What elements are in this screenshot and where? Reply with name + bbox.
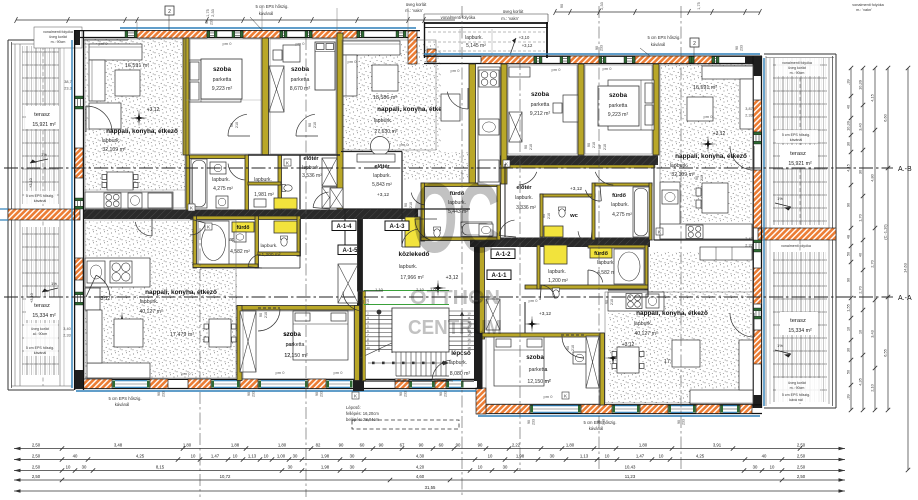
svg-text:5 cm EPS hőszig.: 5 cm EPS hőszig. <box>26 194 54 198</box>
svg-text:nappali, konyha, étkező: nappali, konyha, étkező <box>145 289 217 296</box>
svg-text:pm 0: pm 0 <box>223 41 233 46</box>
svg-text:szoba: szoba <box>531 91 550 98</box>
svg-text:üveg korlát: üveg korlát <box>406 2 427 7</box>
svg-text:m.: 90cm: m.: 90cm <box>790 71 805 75</box>
svg-text:kávánál: kávánál <box>589 426 604 431</box>
svg-text:2,50: 2,50 <box>797 465 806 470</box>
svg-text:nappali, konyha, étkező: nappali, konyha, étkező <box>675 153 747 160</box>
svg-text:fürdő: fürdő <box>237 225 250 231</box>
svg-text:90: 90 <box>315 392 319 396</box>
svg-text:lapburk.: lapburk. <box>254 177 272 183</box>
svg-text:m.: 90cm: m.: 90cm <box>51 40 66 44</box>
svg-text:10: 10 <box>366 346 370 350</box>
svg-text:5,843 m²: 5,843 m² <box>372 182 392 188</box>
svg-text:2,33: 2,33 <box>211 9 215 16</box>
svg-text:pm 0: pm 0 <box>276 370 286 375</box>
svg-text:9,223 m²: 9,223 m² <box>212 86 233 92</box>
svg-text:90: 90 <box>399 392 403 396</box>
svg-text:17,966 m²: 17,966 m² <box>400 275 424 281</box>
svg-text:parketta: parketta <box>286 342 305 348</box>
svg-text:90: 90 <box>695 176 699 180</box>
svg-text:al.: 90cm: al.: 90cm <box>33 332 48 336</box>
svg-text:1,200 m²: 1,200 m² <box>548 278 568 284</box>
svg-text:2,50: 2,50 <box>32 465 41 470</box>
svg-text:lapburk.: lapburk. <box>373 173 391 179</box>
svg-text:18,586 m²: 18,586 m² <box>373 95 397 101</box>
svg-text:90: 90 <box>259 313 263 317</box>
svg-text:lapburk.: lapburk. <box>102 138 120 144</box>
svg-text:K: K <box>354 394 357 399</box>
svg-text:16,591 m²: 16,591 m² <box>125 63 149 69</box>
svg-text:5 cm EPS hőszig.: 5 cm EPS hőszig. <box>108 396 141 401</box>
svg-text:3,87: 3,87 <box>745 107 752 111</box>
svg-text:40,127 m²: 40,127 m² <box>139 309 163 315</box>
svg-text:15,921 m²: 15,921 m² <box>32 122 56 128</box>
svg-text:1,98: 1,98 <box>321 465 330 470</box>
svg-text:2: 2 <box>693 41 696 47</box>
svg-text:4,80: 4,80 <box>870 173 875 181</box>
svg-text:1,80: 1,80 <box>566 443 575 448</box>
svg-text:2,50: 2,50 <box>32 454 41 459</box>
svg-text:szoba: szoba <box>283 331 301 338</box>
svg-text:14,63: 14,63 <box>903 263 908 273</box>
svg-text:4,582 m²: 4,582 m² <box>230 249 250 255</box>
svg-text:OTTHON: OTTHON <box>410 287 500 309</box>
svg-text:90: 90 <box>478 443 483 448</box>
svg-text:terasz: terasz <box>790 151 806 157</box>
svg-text:parketta: parketta <box>213 77 232 83</box>
svg-text:90: 90 <box>598 145 602 149</box>
svg-text:10,39: 10,39 <box>858 80 863 90</box>
svg-text:CENTRUM: CENTRUM <box>408 317 502 339</box>
svg-text:1,200 m²: 1,200 m² <box>262 252 281 258</box>
svg-text:30: 30 <box>550 454 555 459</box>
svg-text:30: 30 <box>293 454 298 459</box>
svg-text:4,30: 4,30 <box>416 454 425 459</box>
svg-text:233: 233 <box>320 391 324 397</box>
svg-text:10: 10 <box>478 465 483 470</box>
svg-text:5 cm EPS hőszig.: 5 cm EPS hőszig. <box>647 35 680 40</box>
svg-text:210: 210 <box>610 299 614 305</box>
svg-text:kávánál: kávánál <box>115 402 130 407</box>
svg-text:vonalmenti folyóka: vonalmenti folyóka <box>43 30 73 34</box>
svg-text:48: 48 <box>846 235 851 239</box>
svg-text:210: 210 <box>264 312 268 318</box>
svg-text:10: 10 <box>605 454 610 459</box>
svg-text:90: 90 <box>560 4 564 8</box>
svg-text:K: K <box>207 225 210 230</box>
svg-text:2,50: 2,50 <box>797 474 806 479</box>
svg-text:3,43: 3,43 <box>870 330 875 338</box>
svg-text:lapburk.: lapburk. <box>597 260 615 266</box>
svg-text:90: 90 <box>542 214 546 218</box>
svg-text:pm 0: pm 0 <box>529 298 539 303</box>
svg-text:parketta: parketta <box>529 367 548 373</box>
svg-text:m.: 'vakn': m.: 'vakn' <box>856 8 872 12</box>
svg-text:fellépés: 16,20cm: fellépés: 16,20cm <box>346 411 379 416</box>
svg-text:terasz: terasz <box>34 303 50 309</box>
svg-text:K: K <box>564 394 567 399</box>
svg-text:A-1-5: A-1-5 <box>342 248 358 254</box>
svg-text:+3,12: +3,12 <box>713 131 726 137</box>
svg-text:90: 90 <box>419 443 424 448</box>
svg-text:5 cm EPS hőszig.: 5 cm EPS hőszig. <box>782 393 810 397</box>
svg-text:90: 90 <box>157 392 161 396</box>
svg-text:szoba: szoba <box>291 66 310 73</box>
svg-text:210: 210 <box>366 299 370 305</box>
svg-text:pm 0: pm 0 <box>99 41 109 46</box>
svg-text:+3,12: +3,12 <box>147 107 160 113</box>
svg-text:233: 233 <box>600 45 604 51</box>
svg-text:12,150 m²: 12,150 m² <box>527 379 551 385</box>
svg-text:parketta: parketta <box>291 77 310 83</box>
svg-text:17,479 m²: 17,479 m² <box>170 332 194 338</box>
svg-text:90: 90 <box>587 143 591 147</box>
svg-text:m.: 'vakn': m.: 'vakn' <box>501 16 519 21</box>
svg-text:1%: 1% <box>41 152 47 157</box>
svg-text:pm 0: pm 0 <box>451 68 461 73</box>
svg-text:10,43: 10,43 <box>625 465 636 470</box>
svg-text:5,145 m²: 5,145 m² <box>466 43 486 49</box>
svg-text:1,80: 1,80 <box>639 443 648 448</box>
svg-text:4,20: 4,20 <box>416 465 425 470</box>
svg-text:1,00: 1,00 <box>277 454 286 459</box>
svg-text:4,25: 4,25 <box>696 454 705 459</box>
svg-text:K: K <box>286 161 289 166</box>
svg-text:233: 233 <box>444 391 448 397</box>
svg-text:30: 30 <box>288 465 293 470</box>
svg-text:90: 90 <box>527 420 531 424</box>
svg-text:67: 67 <box>400 443 405 448</box>
svg-text:2,50: 2,50 <box>32 474 41 479</box>
svg-text:lapburk.: lapburk. <box>634 321 652 327</box>
svg-text:90: 90 <box>361 300 365 304</box>
svg-text:3,48: 3,48 <box>114 443 123 448</box>
svg-text:210: 210 <box>592 142 596 148</box>
svg-text:A-1-3: A-1-3 <box>389 224 405 230</box>
svg-text:kávánál: kávánál <box>790 138 803 142</box>
svg-text:2,70: 2,70 <box>858 285 863 293</box>
svg-text:4,15: 4,15 <box>870 94 875 102</box>
svg-text:1%: 1% <box>777 196 783 201</box>
svg-text:1%: 1% <box>51 281 57 286</box>
svg-text:1,98: 1,98 <box>516 454 525 459</box>
svg-text:2,33: 2,33 <box>745 244 752 248</box>
svg-text:10: 10 <box>66 465 71 470</box>
svg-text:pm 0: pm 0 <box>544 394 554 399</box>
svg-text:8,080 m²: 8,080 m² <box>450 371 471 377</box>
svg-text:27,530 m²: 27,530 m² <box>374 129 398 135</box>
svg-text:A.-B: A.-B <box>898 166 912 173</box>
svg-text:233: 233 <box>404 391 408 397</box>
svg-text:90: 90 <box>439 392 443 396</box>
svg-text:1,47: 1,47 <box>211 454 220 459</box>
svg-text:2,33: 2,33 <box>745 114 752 118</box>
svg-text:233: 233 <box>682 419 686 425</box>
svg-text:+3,12: +3,12 <box>570 186 582 192</box>
svg-text:30: 30 <box>753 465 758 470</box>
svg-text:4,35: 4,35 <box>858 378 863 386</box>
svg-text:üveg korlát: üveg korlát <box>788 381 806 385</box>
svg-text:210: 210 <box>529 144 533 150</box>
svg-text:233: 233 <box>162 391 166 397</box>
svg-text:lapburk.: lapburk. <box>374 118 392 124</box>
svg-text:kávánál: kávánál <box>34 199 47 203</box>
svg-text:terasz: terasz <box>34 112 50 118</box>
svg-text:5 cm EPS hőszig.: 5 cm EPS hőszig. <box>26 346 54 350</box>
svg-text:2,22: 2,22 <box>512 443 521 448</box>
svg-text:90: 90 <box>735 46 739 50</box>
svg-text:1,47: 1,47 <box>636 454 645 459</box>
svg-text:1,98: 1,98 <box>321 454 330 459</box>
svg-text:233: 233 <box>740 45 744 51</box>
svg-text:2,10: 2,10 <box>870 383 875 391</box>
svg-text:kávánál: kávánál <box>259 11 274 16</box>
svg-text:82: 82 <box>316 443 321 448</box>
svg-text:4,275 m²: 4,275 m² <box>612 212 632 218</box>
svg-text:210: 210 <box>700 175 704 181</box>
svg-text:,39: ,39 <box>846 394 851 399</box>
svg-text:2,50: 2,50 <box>797 454 806 459</box>
svg-text:32,109 m²: 32,109 m² <box>102 147 126 153</box>
svg-text:1,981 m²: 1,981 m² <box>254 192 274 198</box>
svg-text:10: 10 <box>191 454 196 459</box>
svg-text:pm 0: pm 0 <box>552 67 562 72</box>
svg-text:lapburk.: lapburk. <box>449 360 467 366</box>
svg-text:vonalmenti folyóka: vonalmenti folyóka <box>852 3 884 7</box>
svg-text:parketta: parketta <box>609 103 628 109</box>
svg-text:vonalmenti folyóka: vonalmenti folyóka <box>441 15 476 20</box>
svg-text:210: 210 <box>603 144 607 150</box>
svg-text:10: 10 <box>659 454 664 459</box>
svg-text:3,536 m²: 3,536 m² <box>302 173 322 179</box>
svg-text:lapburk.: lapburk. <box>465 35 483 41</box>
svg-text:16,591 m²: 16,591 m² <box>693 85 717 91</box>
svg-text:90: 90 <box>456 443 461 448</box>
svg-text:15,921 m²: 15,921 m² <box>788 161 812 167</box>
svg-text:kává nál: kává nál <box>789 398 803 402</box>
svg-text:10: 10 <box>264 454 269 459</box>
svg-text:,39: ,39 <box>846 79 851 84</box>
svg-text:lapburk.: lapburk. <box>548 269 566 275</box>
svg-text:előtér: előtér <box>374 164 390 170</box>
svg-text:wc: wc <box>569 213 579 219</box>
svg-text:2,50: 2,50 <box>32 443 41 448</box>
svg-text:lapburk.: lapburk. <box>260 243 277 249</box>
svg-text:5 cm EPS hőszig.: 5 cm EPS hőszig. <box>782 133 810 137</box>
svg-text:1,88: 1,88 <box>231 443 240 448</box>
svg-text:lépcső: lépcső <box>451 350 471 357</box>
svg-text:+3,12: +3,12 <box>446 275 459 281</box>
svg-text:3,40: 3,40 <box>858 122 863 130</box>
svg-text:6,55: 6,55 <box>883 349 888 357</box>
svg-text:40: 40 <box>762 454 767 459</box>
svg-text:vonalmenti folyóka: vonalmenti folyóka <box>781 244 811 248</box>
svg-text:+3,12: +3,12 <box>522 43 533 48</box>
svg-text:30: 30 <box>503 465 508 470</box>
svg-text:kávánál: kávánál <box>34 351 47 355</box>
svg-text:kávánál: kávánál <box>651 42 666 47</box>
svg-text:4,25: 4,25 <box>136 454 145 459</box>
svg-text:szoba: szoba <box>526 354 544 361</box>
svg-text:90: 90 <box>566 346 570 350</box>
svg-text:9,212 m²: 9,212 m² <box>530 111 551 117</box>
svg-text:fürdő: fürdő <box>612 193 626 199</box>
svg-text:1,13: 1,13 <box>248 454 257 459</box>
svg-text:210: 210 <box>313 122 317 128</box>
svg-text:10,72: 10,72 <box>220 474 231 479</box>
svg-text:üveg korlát: üveg korlát <box>503 9 524 14</box>
svg-text:233: 233 <box>602 419 606 425</box>
svg-text:5 cm EPS hőszig.: 5 cm EPS hőszig. <box>255 4 288 9</box>
svg-text:1,13: 1,13 <box>580 454 589 459</box>
svg-text:1,75: 1,75 <box>697 2 701 9</box>
svg-text:A.-A: A.-A <box>898 295 912 302</box>
svg-text:31,55: 31,55 <box>425 485 436 490</box>
svg-text:11,23: 11,23 <box>625 474 636 479</box>
svg-text:üveg korlát: üveg korlát <box>788 66 806 70</box>
svg-text:(C.-1,10): (C.-1,10) <box>883 224 888 240</box>
svg-text:pm 0: pm 0 <box>603 66 613 71</box>
svg-text:10: 10 <box>770 465 775 470</box>
svg-text:+3,12: +3,12 <box>539 311 551 317</box>
svg-text:1,80: 1,80 <box>278 443 287 448</box>
svg-text:90: 90 <box>404 203 408 207</box>
svg-text:40: 40 <box>73 454 78 459</box>
svg-text:fürdő: fürdő <box>594 251 608 257</box>
svg-text:60: 60 <box>439 443 444 448</box>
svg-text:pm 0: pm 0 <box>182 371 192 376</box>
svg-text:szoba: szoba <box>213 66 232 73</box>
svg-text:30: 30 <box>350 465 355 470</box>
svg-text:18: 18 <box>467 346 471 350</box>
svg-text:4,275 m²: 4,275 m² <box>213 186 233 192</box>
svg-text:6,60: 6,60 <box>883 113 888 121</box>
svg-text:2,33: 2,33 <box>600 2 604 9</box>
svg-text:90: 90 <box>595 46 599 50</box>
svg-text:előtér: előtér <box>516 185 532 191</box>
svg-text:1,55: 1,55 <box>846 304 851 312</box>
svg-text:1,75: 1,75 <box>206 9 210 16</box>
svg-text:lapburk.: lapburk. <box>515 195 533 201</box>
svg-text:8,670 m²: 8,670 m² <box>290 86 311 92</box>
svg-text:parketta: parketta <box>531 102 550 108</box>
svg-text:vonalmenti folyóka: vonalmenti folyóka <box>782 61 812 65</box>
svg-text:60: 60 <box>360 443 365 448</box>
svg-text:3,336 m²: 3,336 m² <box>516 205 536 211</box>
svg-text:2,33: 2,33 <box>63 334 70 338</box>
svg-text:90: 90 <box>605 300 609 304</box>
svg-text:pm 0: pm 0 <box>400 142 410 147</box>
svg-text:23,3: 23,3 <box>64 87 71 91</box>
svg-text:terasz: terasz <box>790 318 806 324</box>
svg-text:pm 0: pm 0 <box>296 41 306 46</box>
svg-text:210: 210 <box>571 345 575 351</box>
svg-text:lapburk.: lapburk. <box>212 177 230 183</box>
svg-text:90: 90 <box>339 443 344 448</box>
svg-text:233: 233 <box>252 391 256 397</box>
svg-text:pm 0: pm 0 <box>348 59 358 64</box>
svg-text:90: 90 <box>247 392 251 396</box>
svg-text:1%: 1% <box>777 343 783 348</box>
svg-text:10: 10 <box>488 454 493 459</box>
svg-text:40,127 m²: 40,127 m² <box>634 331 658 337</box>
svg-text:m.: 90cm: m.: 90cm <box>790 386 805 390</box>
svg-text:8,15: 8,15 <box>156 465 165 470</box>
svg-text:210: 210 <box>235 122 239 128</box>
svg-text:üveg korlát: üveg korlát <box>49 35 67 39</box>
svg-text:90: 90 <box>597 420 601 424</box>
svg-text:38,7: 38,7 <box>64 80 71 84</box>
svg-text:90: 90 <box>379 443 384 448</box>
svg-text:3,91: 3,91 <box>713 443 722 448</box>
svg-text:szoba: szoba <box>609 92 628 99</box>
svg-text:K: K <box>190 206 193 211</box>
svg-text:lapburk.: lapburk. <box>611 202 629 208</box>
svg-text:nappali, konyha, étkező: nappali, konyha, étkező <box>377 106 449 113</box>
svg-text:2: 2 <box>168 9 171 15</box>
svg-text:+3,10: +3,10 <box>519 35 530 40</box>
svg-text:Lépcső:: Lépcső: <box>346 405 361 410</box>
svg-text:90: 90 <box>230 123 234 127</box>
svg-text:pm 0: pm 0 <box>704 114 714 119</box>
svg-text:15,334 m²: 15,334 m² <box>32 313 56 319</box>
svg-text:+3,10: +3,10 <box>29 178 33 188</box>
svg-text:10: 10 <box>233 454 238 459</box>
svg-text:2,70: 2,70 <box>870 259 875 267</box>
svg-text:10,39: 10,39 <box>846 121 851 131</box>
svg-text:lapburk.: lapburk. <box>140 299 158 305</box>
svg-text:A-1-1: A-1-1 <box>491 273 507 279</box>
svg-text:üveg korlát: üveg korlát <box>31 327 49 331</box>
svg-text:90: 90 <box>524 145 528 149</box>
svg-text:90: 90 <box>308 123 312 127</box>
svg-text:15,334 m²: 15,334 m² <box>788 328 812 334</box>
svg-text:90: 90 <box>677 420 681 424</box>
svg-text:+3,12: +3,12 <box>377 192 389 198</box>
svg-text:30: 30 <box>350 454 355 459</box>
svg-text:210: 210 <box>547 213 551 219</box>
svg-text:OC: OC <box>412 162 500 273</box>
svg-text:A-1-4: A-1-4 <box>336 224 352 230</box>
svg-text:+3,10: +3,10 <box>30 293 34 303</box>
svg-text:3,40: 3,40 <box>63 327 70 331</box>
svg-text:30: 30 <box>82 465 87 470</box>
svg-text:K: K <box>658 230 661 235</box>
svg-text:belépés: 28,84cm: belépés: 28,84cm <box>346 417 380 422</box>
svg-text:4,60: 4,60 <box>416 474 425 479</box>
svg-text:233: 233 <box>532 419 536 425</box>
svg-text:12,150 m²: 12,150 m² <box>284 353 308 359</box>
svg-text:pm 0: pm 0 <box>334 370 344 375</box>
svg-text:1,70: 1,70 <box>858 213 863 221</box>
svg-text:32,109 m²: 32,109 m² <box>671 172 695 178</box>
svg-text:4,15: 4,15 <box>846 164 851 172</box>
svg-text:9,223 m²: 9,223 m² <box>608 112 629 118</box>
